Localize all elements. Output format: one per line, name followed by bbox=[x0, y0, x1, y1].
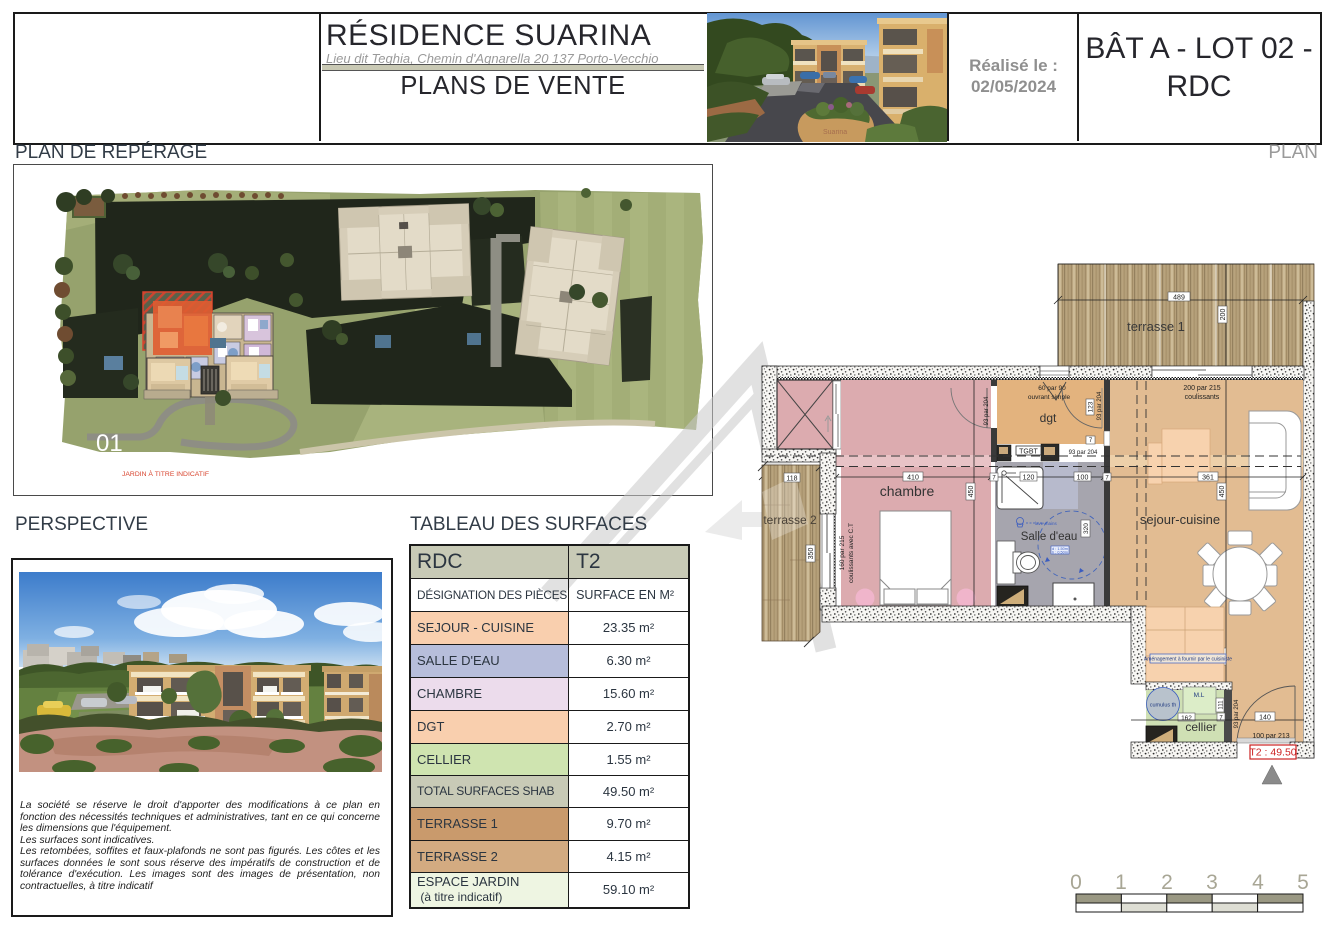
svg-text:140: 140 bbox=[1259, 715, 1271, 722]
svg-text:chambre: chambre bbox=[880, 483, 935, 499]
svg-text:dgt: dgt bbox=[1040, 411, 1057, 425]
svg-text:93 par 204: 93 par 204 bbox=[1097, 391, 1103, 420]
svg-text:cumulus th: cumulus th bbox=[1150, 703, 1177, 709]
svg-text:450: 450 bbox=[968, 486, 975, 498]
svg-text:Aménagement à fournir par le c: Aménagement à fournir par le cuisiniste bbox=[1144, 657, 1232, 663]
svg-text:100 par 213: 100 par 213 bbox=[1252, 733, 1289, 740]
svg-text:ouvrant simple: ouvrant simple bbox=[1028, 394, 1071, 401]
svg-text:93 par 204: 93 par 204 bbox=[1069, 450, 1098, 456]
svg-text:sejour-cuisine: sejour-cuisine bbox=[1140, 512, 1220, 527]
svg-text:Suarina: Suarina bbox=[823, 129, 847, 136]
svg-text:350: 350 bbox=[808, 548, 815, 560]
svg-text:410: 410 bbox=[907, 475, 919, 482]
svg-text:60 par 90: 60 par 90 bbox=[1038, 385, 1066, 392]
svg-text:Salle d'eau: Salle d'eau bbox=[1021, 531, 1078, 543]
svg-text:0: 0 bbox=[1070, 871, 1082, 894]
svg-text:120: 120 bbox=[1023, 475, 1035, 482]
svg-text:118: 118 bbox=[786, 476, 797, 483]
svg-text:h : 0.50m: h : 0.50m bbox=[1052, 551, 1068, 555]
svg-text:123: 123 bbox=[1088, 401, 1095, 412]
svg-text:93 par 204: 93 par 204 bbox=[1234, 699, 1240, 728]
svg-text:5: 5 bbox=[1297, 871, 1309, 894]
svg-text:111: 111 bbox=[1219, 700, 1225, 710]
svg-text:terrasse 1: terrasse 1 bbox=[1127, 319, 1185, 334]
svg-text:coulissants: coulissants bbox=[1185, 394, 1220, 401]
svg-text:100: 100 bbox=[1077, 475, 1089, 482]
svg-text:93 par 204: 93 par 204 bbox=[984, 396, 990, 425]
svg-text:M.L: M.L bbox=[1194, 692, 1205, 699]
svg-text:4: 4 bbox=[1252, 871, 1264, 894]
svg-text:cellier: cellier bbox=[1185, 720, 1216, 734]
svg-text:200 par 215: 200 par 215 bbox=[1183, 385, 1220, 392]
svg-text:320: 320 bbox=[1083, 523, 1090, 534]
svg-text:01: 01 bbox=[96, 430, 123, 457]
svg-text:200: 200 bbox=[1220, 309, 1227, 321]
svg-text:terrasse 2: terrasse 2 bbox=[763, 513, 817, 527]
svg-text:361: 361 bbox=[1202, 475, 1214, 482]
svg-text:162: 162 bbox=[1181, 715, 1192, 722]
svg-text:489: 489 bbox=[1173, 295, 1185, 302]
svg-text:TGBT: TGBT bbox=[1019, 449, 1038, 456]
svg-text:3: 3 bbox=[1206, 871, 1218, 894]
svg-text:T2 : 49.50: T2 : 49.50 bbox=[1249, 747, 1296, 759]
svg-text:JARDIN À TITRE INDICATIF: JARDIN À TITRE INDICATIF bbox=[122, 469, 209, 478]
svg-text:coulissants avec C.T: coulissants avec C.T bbox=[848, 523, 855, 583]
svg-text:450: 450 bbox=[1219, 486, 1226, 498]
svg-text:1: 1 bbox=[1115, 871, 1127, 894]
svg-text:lave-mains: lave-mains bbox=[1035, 521, 1058, 526]
svg-text:2: 2 bbox=[1161, 871, 1173, 894]
svg-text:160 par 215: 160 par 215 bbox=[839, 535, 846, 570]
